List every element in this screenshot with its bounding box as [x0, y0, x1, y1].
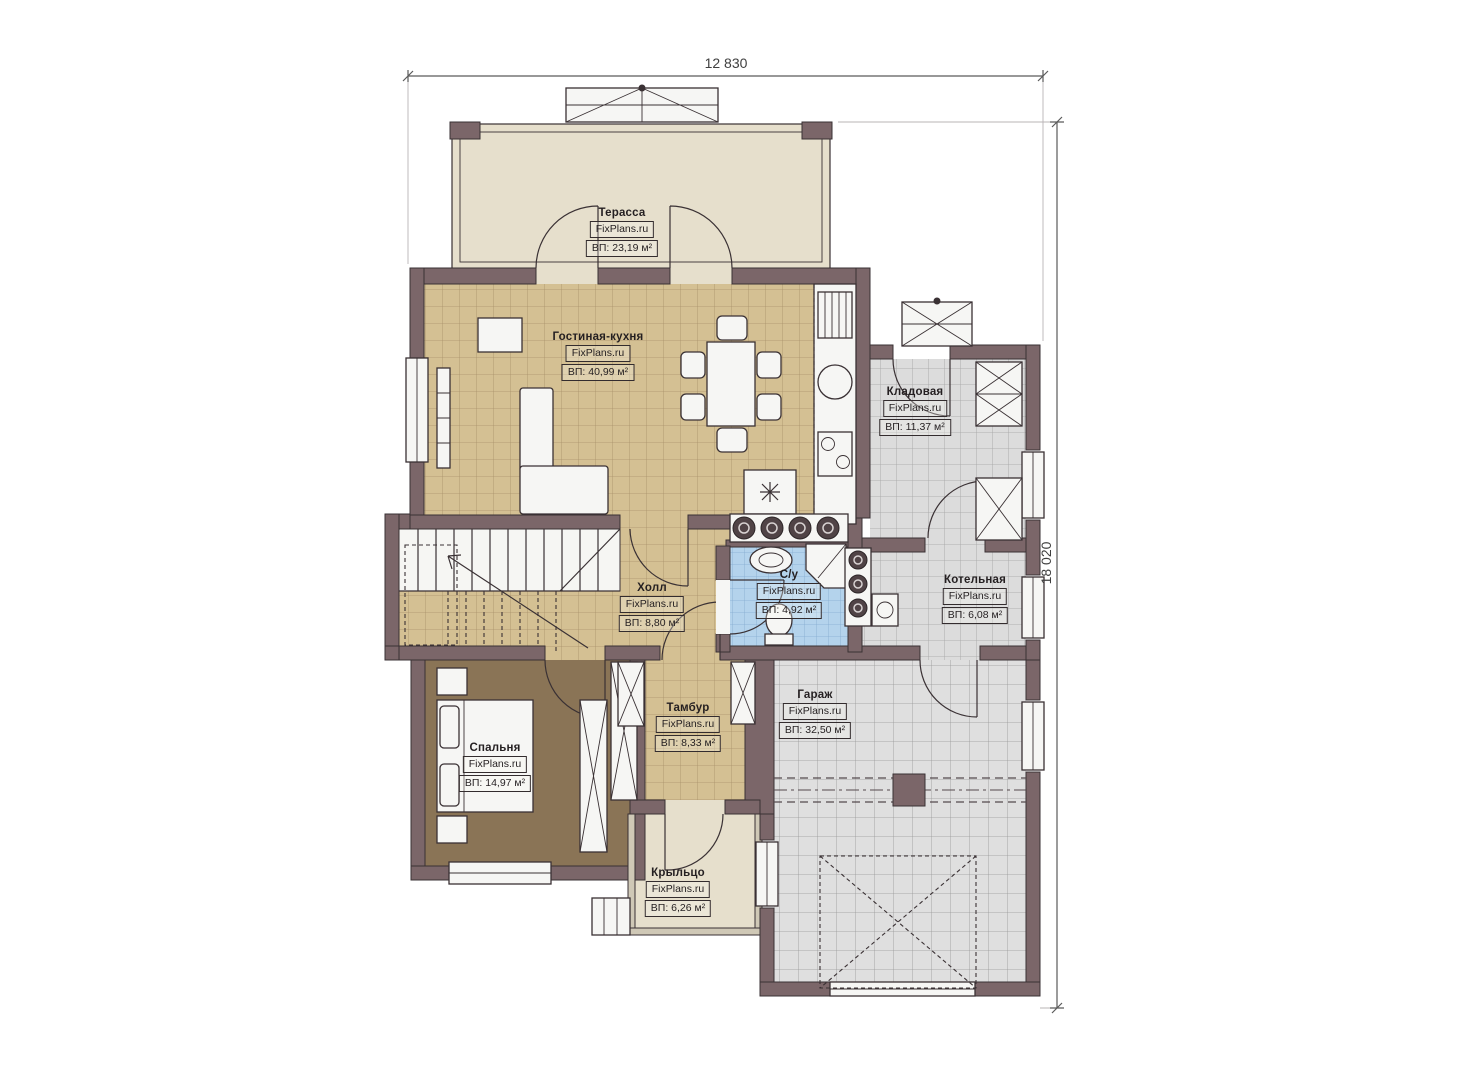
floor-plan-drawing: [0, 0, 1473, 1080]
watermark: FixPlans.ru: [590, 221, 655, 238]
watermark: FixPlans.ru: [463, 756, 528, 773]
room-label-vestibule: Тамбур FixPlans.ru ВП: 8,33 м²: [655, 702, 721, 752]
room-area: ВП: 23,19 м²: [586, 240, 658, 257]
watermark: FixPlans.ru: [883, 400, 948, 417]
room-name: Гостиная-кухня: [553, 331, 644, 343]
room-area: ВП: 6,26 м²: [645, 900, 711, 917]
window: [406, 358, 428, 462]
room-name: Спальня: [469, 742, 520, 754]
room-label-terrace: Терасса FixPlans.ru ВП: 23,19 м²: [586, 207, 658, 257]
room-name: Гараж: [797, 689, 832, 701]
room-area: ВП: 14,97 м²: [459, 775, 531, 792]
window: [1022, 452, 1044, 518]
room-name: Тамбур: [667, 702, 710, 714]
watermark: FixPlans.ru: [757, 583, 822, 600]
bar-stools: [730, 514, 848, 542]
room-area: ВП: 32,50 м²: [779, 722, 851, 739]
room-area: ВП: 40,99 м²: [562, 364, 634, 381]
watermark: FixPlans.ru: [656, 716, 721, 733]
room-area: ВП: 4,92 м²: [756, 602, 822, 619]
room-label-boiler-room: Котельная FixPlans.ru ВП: 6,08 м²: [942, 574, 1008, 624]
room-name: Котельная: [944, 574, 1006, 586]
window: [449, 862, 551, 884]
porch-steps: [592, 898, 630, 935]
terrace-top-stair: [566, 85, 718, 123]
window: [1022, 702, 1044, 770]
room-name: Холл: [637, 582, 667, 594]
room-label-garage: Гараж FixPlans.ru ВП: 32,50 м²: [779, 689, 851, 739]
window: [1022, 577, 1044, 638]
room-name: Кладовая: [887, 386, 944, 398]
watermark: FixPlans.ru: [620, 596, 685, 613]
room-area: ВП: 8,80 м²: [619, 615, 685, 632]
room-area: ВП: 11,37 м²: [879, 419, 951, 436]
room-name: Крыльцо: [651, 867, 705, 879]
watermark: FixPlans.ru: [943, 588, 1008, 605]
room-label-porch: Крыльцо FixPlans.ru ВП: 6,26 м²: [645, 867, 711, 917]
room-label-living-kitchen: Гостиная-кухня FixPlans.ru ВП: 40,99 м²: [553, 331, 644, 381]
watermark: FixPlans.ru: [646, 881, 711, 898]
watermark: FixPlans.ru: [566, 345, 631, 362]
dimension-width-label: 12 830: [705, 55, 748, 71]
room-label-storage: Кладовая FixPlans.ru ВП: 11,37 м²: [879, 386, 951, 436]
room-area: ВП: 6,08 м²: [942, 607, 1008, 624]
room-label-hall: Холл FixPlans.ru ВП: 8,80 м²: [619, 582, 685, 632]
room-label-bathroom: С/у FixPlans.ru ВП: 4,92 м²: [756, 569, 822, 619]
room-area: ВП: 8,33 м²: [655, 735, 721, 752]
floor-plan: 12 830 18 020 Терасса FixPlans.ru ВП: 23…: [0, 0, 1473, 1080]
watermark: FixPlans.ru: [783, 703, 848, 720]
room-name: С/у: [780, 569, 799, 581]
room-name: Терасса: [598, 207, 645, 219]
storage-exterior-landing: [902, 298, 972, 347]
garage-door-opening: [830, 982, 975, 996]
room-label-bedroom: Спальня FixPlans.ru ВП: 14,97 м²: [459, 742, 531, 792]
window: [756, 842, 778, 906]
dimension-height-label: 18 020: [1038, 542, 1054, 585]
